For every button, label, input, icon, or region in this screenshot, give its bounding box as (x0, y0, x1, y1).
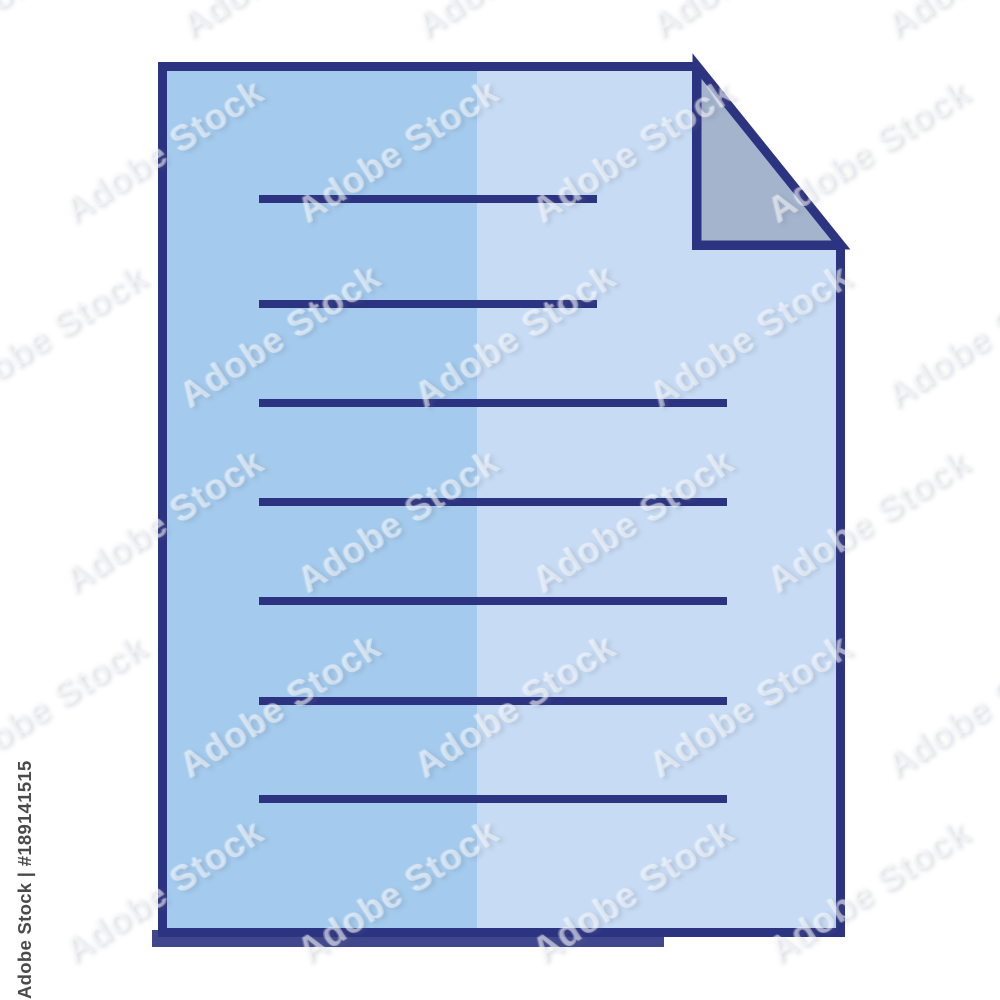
corner-fold-icon (697, 66, 841, 245)
stock-image-canvas: Adobe StockAdobe StockAdobe StockAdobe S… (0, 0, 1000, 1000)
document-icon (0, 0, 1000, 1000)
watermark-id-text: Adobe Stock | #189141515 (14, 760, 36, 999)
